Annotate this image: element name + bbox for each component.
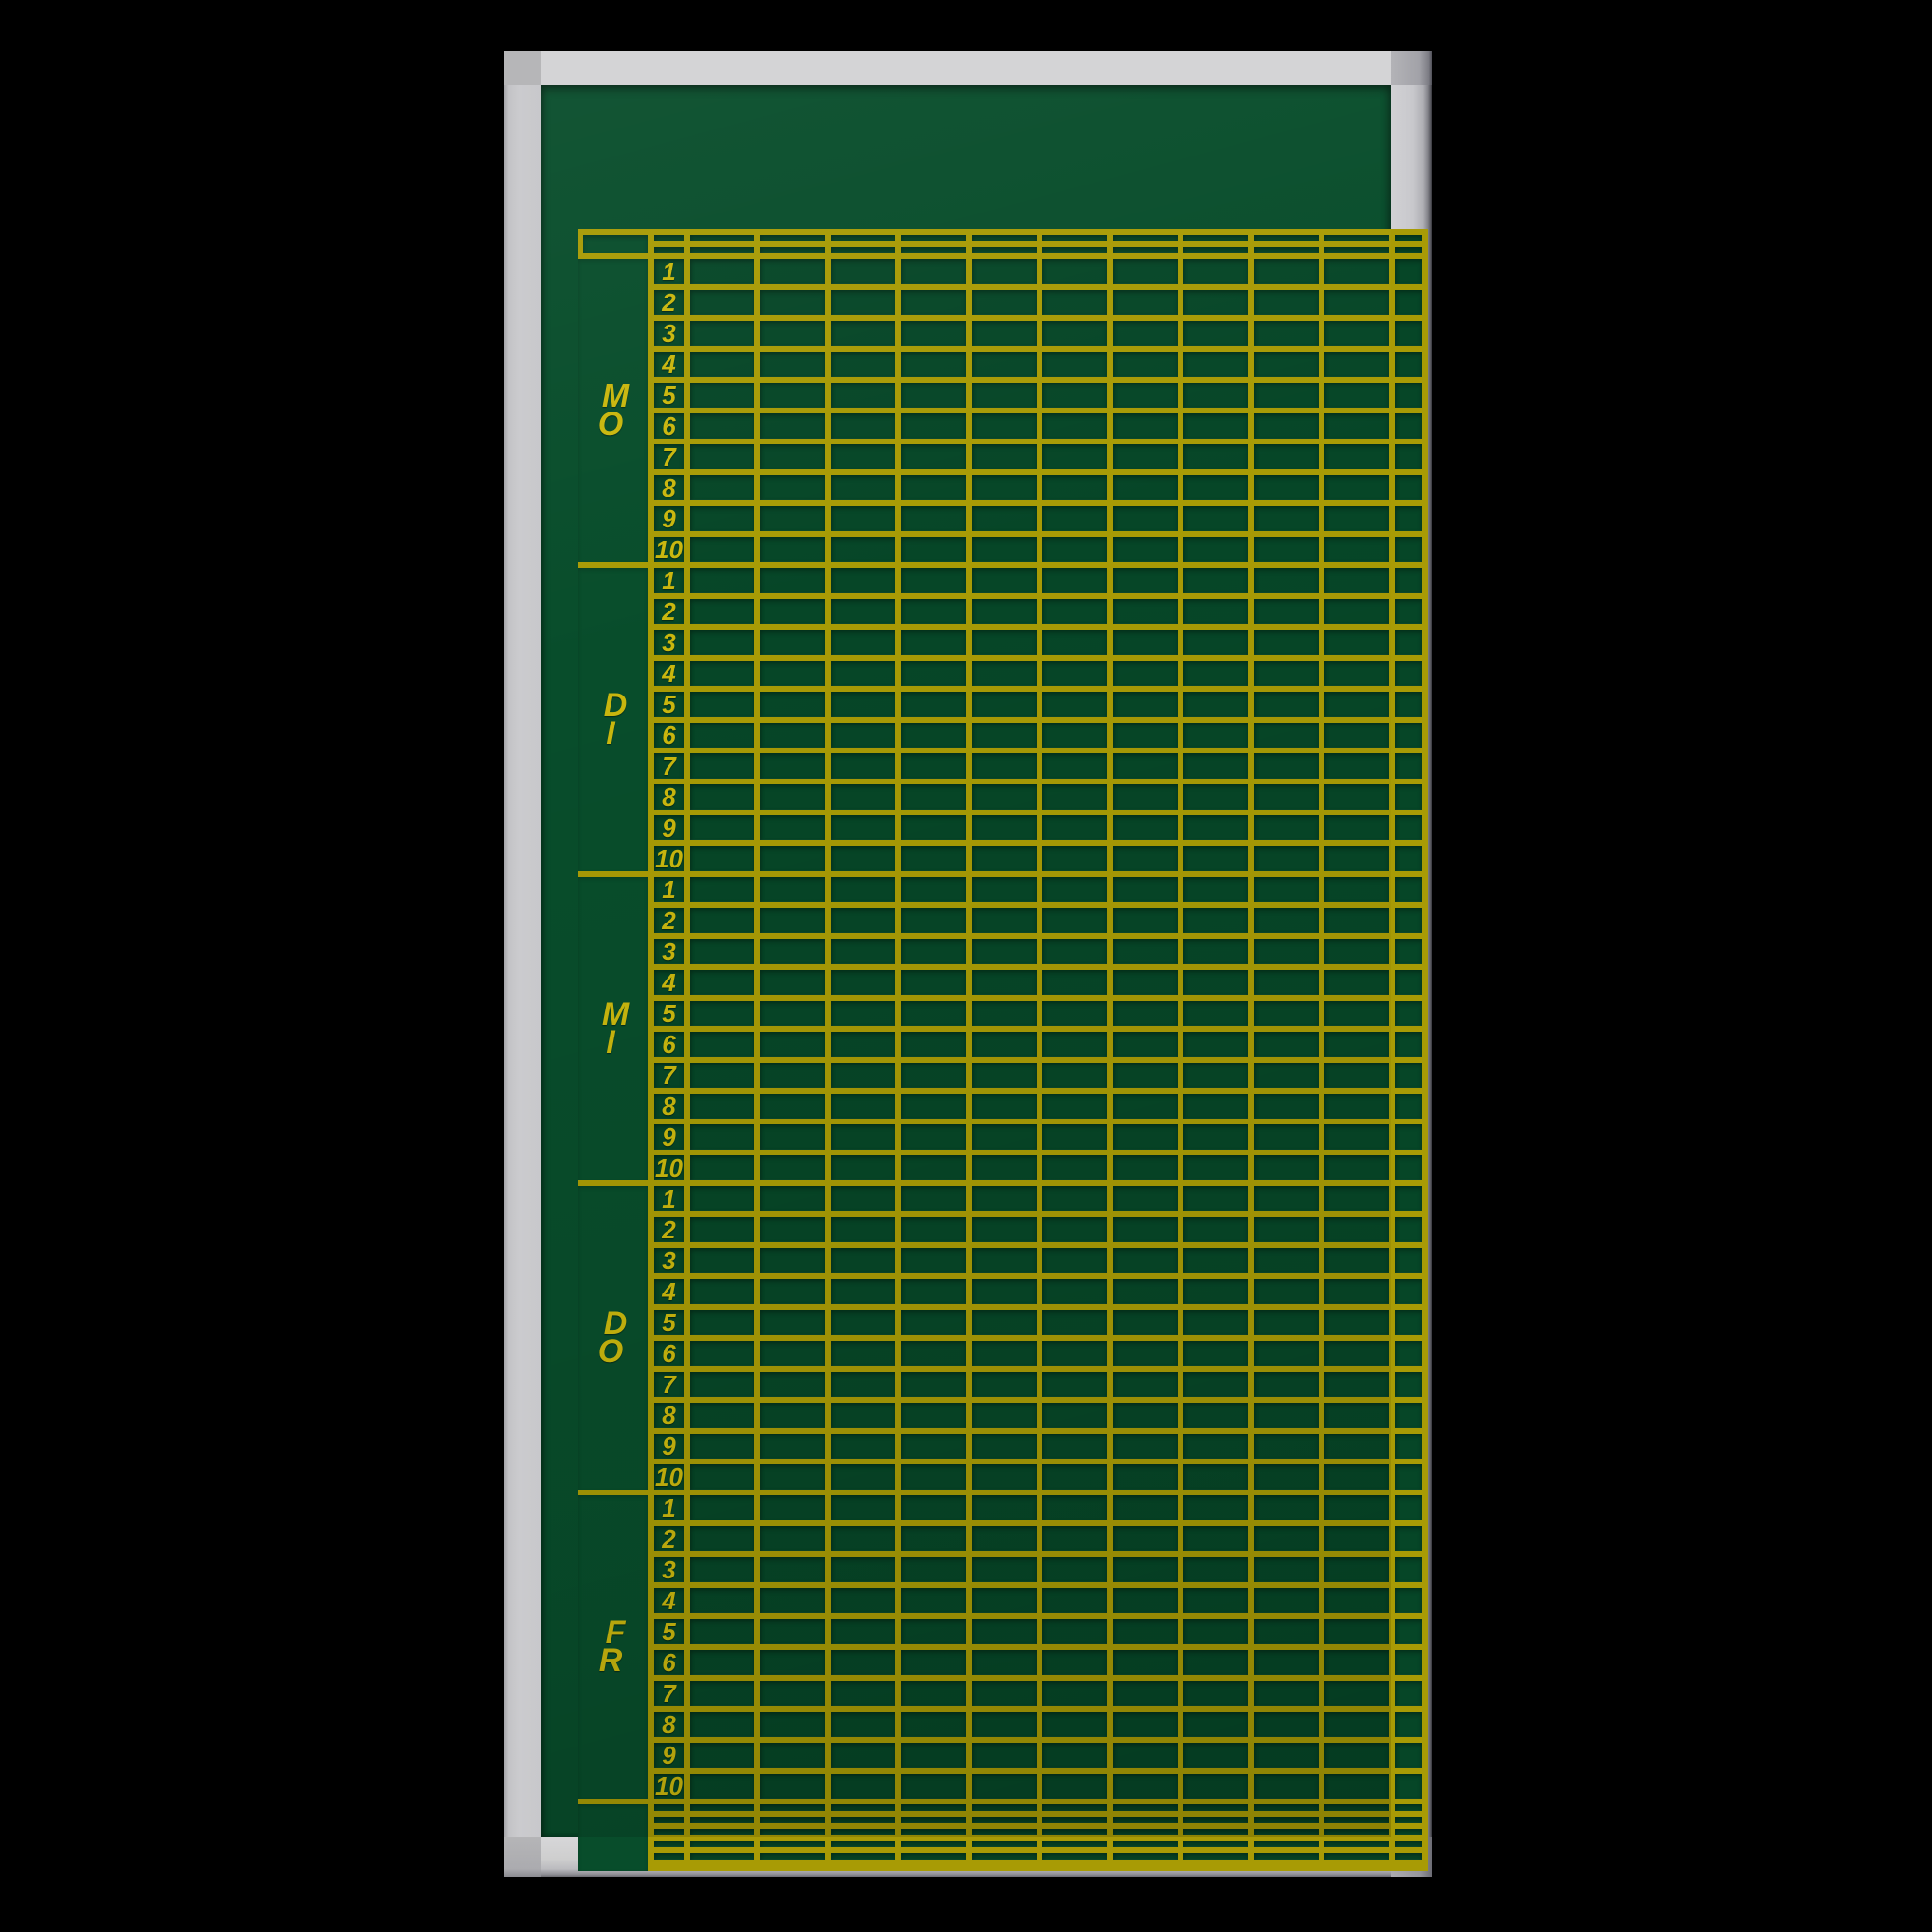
slot-cell xyxy=(831,753,895,779)
period-number-cell: 2 xyxy=(654,908,684,933)
slot-cell xyxy=(690,1841,754,1848)
slot-cell xyxy=(1324,784,1389,810)
slot-cell xyxy=(1395,753,1422,779)
slot-cell xyxy=(1113,1588,1178,1613)
slot-cell xyxy=(690,1588,754,1613)
slot-cell xyxy=(831,1372,895,1397)
slot-cell xyxy=(1324,259,1389,284)
slot-cell xyxy=(1395,1341,1422,1366)
slot-cell xyxy=(1183,784,1248,810)
slot-cell xyxy=(1113,723,1178,748)
slot-cell xyxy=(1113,939,1178,964)
frame-corner-cap-top-right xyxy=(1391,51,1432,85)
slot-cell xyxy=(901,1495,966,1520)
slot-cell xyxy=(1324,939,1389,964)
slot-cell xyxy=(760,1526,825,1551)
slot-cell xyxy=(690,1186,754,1211)
slot-cell xyxy=(831,1279,895,1304)
slot-cell xyxy=(760,1853,825,1860)
slot-cell xyxy=(760,290,825,315)
slot-cell xyxy=(690,1557,754,1582)
slot-cell xyxy=(690,815,754,840)
slot-cell xyxy=(901,1124,966,1150)
slot-cell xyxy=(1183,568,1248,593)
slot-cell xyxy=(1395,413,1422,439)
footer-label-section xyxy=(578,1804,648,1871)
slot-cell xyxy=(1042,1681,1107,1706)
slot-cell xyxy=(690,846,754,871)
slot-cell xyxy=(1395,1279,1422,1304)
slot-cell xyxy=(1395,444,1422,469)
slot-cell xyxy=(972,753,1037,779)
slot-cell xyxy=(1254,1774,1319,1799)
slot-cell xyxy=(1324,815,1389,840)
slot-cell xyxy=(1254,599,1319,624)
period-number-cell: 6 xyxy=(654,413,684,439)
period-number-cell: 1 xyxy=(654,1495,684,1520)
period-number-cell: 2 xyxy=(654,599,684,624)
slot-cell xyxy=(901,1774,966,1799)
slot-cell xyxy=(1113,970,1178,995)
slot-cell xyxy=(1395,1155,1422,1180)
slot-cell xyxy=(1395,1804,1422,1811)
slot-cell xyxy=(1042,1829,1107,1835)
slot-cell xyxy=(1042,599,1107,624)
slot-cell xyxy=(1042,970,1107,995)
period-number-cell: 7 xyxy=(654,1681,684,1706)
slot-cell xyxy=(1183,506,1248,531)
slot-cell xyxy=(1395,475,1422,500)
slot-cell xyxy=(1395,1063,1422,1088)
period-number-cell: 7 xyxy=(654,1063,684,1088)
slot-cell xyxy=(1395,247,1422,254)
slot-cell xyxy=(1042,506,1107,531)
slot-cell xyxy=(1183,247,1248,254)
slot-cell xyxy=(1324,1310,1389,1335)
slot-cell xyxy=(1113,321,1178,346)
slot-cell xyxy=(1254,877,1319,902)
slot-cell xyxy=(1395,846,1422,871)
slot-cell xyxy=(972,877,1037,902)
frame-corner-cap-bottom-left xyxy=(504,1837,541,1877)
slot-cell xyxy=(1042,1526,1107,1551)
period-number-cell: 6 xyxy=(654,1650,684,1675)
slot-cell xyxy=(690,753,754,779)
slot-cell xyxy=(831,321,895,346)
slot-cell xyxy=(1254,1310,1319,1335)
slot-cell xyxy=(831,537,895,562)
slot-cell xyxy=(1324,413,1389,439)
slot-cell xyxy=(901,815,966,840)
slot-cell xyxy=(690,599,754,624)
slot-cell xyxy=(1113,1804,1178,1811)
frame-left-rail xyxy=(504,51,541,1877)
slot-cell xyxy=(760,970,825,995)
slot-cell xyxy=(1254,1434,1319,1459)
slot-cell xyxy=(760,753,825,779)
slot-cell xyxy=(760,352,825,377)
slot-cell xyxy=(1183,1001,1248,1026)
slot-cell xyxy=(901,1619,966,1644)
slot-cell xyxy=(690,475,754,500)
slot-cell xyxy=(1042,1804,1107,1811)
slot-cell xyxy=(760,1829,825,1835)
slot-cell xyxy=(1183,1186,1248,1211)
slot-cell xyxy=(1183,753,1248,779)
slot-cell xyxy=(1254,321,1319,346)
slot-cell xyxy=(972,259,1037,284)
slot-cell xyxy=(1395,1557,1422,1582)
slot-cell xyxy=(901,1001,966,1026)
slot-cell xyxy=(972,1681,1037,1706)
slot-cell xyxy=(901,692,966,717)
slot-cell xyxy=(1113,753,1178,779)
period-number-cell-empty xyxy=(654,1853,684,1860)
slot-cell xyxy=(1324,1464,1389,1490)
slot-cell xyxy=(831,444,895,469)
period-number-cell: 3 xyxy=(654,630,684,655)
period-number-cell: 6 xyxy=(654,723,684,748)
slot-cell xyxy=(760,568,825,593)
period-number-cell: 1 xyxy=(654,259,684,284)
slot-cell xyxy=(972,1829,1037,1835)
slot-cell xyxy=(831,1063,895,1088)
period-number-cell: 5 xyxy=(654,1001,684,1026)
slot-cell xyxy=(901,235,966,241)
slot-cell xyxy=(1042,1853,1107,1860)
slot-cell xyxy=(1254,1865,1319,1872)
slot-cell xyxy=(760,1248,825,1273)
slot-cell xyxy=(901,908,966,933)
slot-cell xyxy=(1183,1853,1248,1860)
slot-cell xyxy=(690,1526,754,1551)
slot-cell xyxy=(1254,1526,1319,1551)
slot-cell xyxy=(972,383,1037,408)
slot-cell xyxy=(1113,1155,1178,1180)
schedule-board: MODIMIDOFR123456789101234567891012345678… xyxy=(504,51,1432,1877)
slot-cell xyxy=(690,1403,754,1428)
slot-cell xyxy=(901,1434,966,1459)
slot-cell xyxy=(1395,723,1422,748)
slot-cell xyxy=(1324,1817,1389,1824)
slot-cell xyxy=(901,1341,966,1366)
slot-cell xyxy=(1324,1853,1389,1860)
slot-cell xyxy=(1183,1817,1248,1824)
slot-cell xyxy=(1254,1743,1319,1768)
slot-cell xyxy=(972,444,1037,469)
slot-cell xyxy=(831,568,895,593)
slot-cell xyxy=(1254,247,1319,254)
slot-cell xyxy=(901,661,966,686)
slot-cell xyxy=(690,1155,754,1180)
slot-cell xyxy=(972,321,1037,346)
slot-cell xyxy=(690,1063,754,1088)
slot-cell xyxy=(690,1372,754,1397)
slot-cell xyxy=(1254,259,1319,284)
slot-cell xyxy=(1254,1681,1319,1706)
slot-cell xyxy=(972,1248,1037,1273)
slot-cell xyxy=(1042,1841,1107,1848)
slot-cell xyxy=(690,939,754,964)
slot-cell xyxy=(1042,1619,1107,1644)
slot-cell xyxy=(1183,1279,1248,1304)
slot-cell xyxy=(1183,661,1248,686)
period-number-cell: 2 xyxy=(654,1217,684,1242)
slot-cell xyxy=(760,1063,825,1088)
slot-cell xyxy=(1113,352,1178,377)
slot-cell xyxy=(690,877,754,902)
slot-cell xyxy=(690,1650,754,1675)
slot-cell xyxy=(690,630,754,655)
period-number-cell: 9 xyxy=(654,815,684,840)
slot-cell xyxy=(972,568,1037,593)
slot-cell xyxy=(1183,599,1248,624)
slot-cell xyxy=(1324,753,1389,779)
period-number-cell-empty xyxy=(654,1804,684,1811)
period-number-cell: 7 xyxy=(654,753,684,779)
slot-cell xyxy=(1183,1841,1248,1848)
slot-cell xyxy=(760,877,825,902)
slot-cell xyxy=(1324,661,1389,686)
slot-cell xyxy=(1183,290,1248,315)
slot-cell xyxy=(1183,939,1248,964)
slot-cell xyxy=(1324,568,1389,593)
slot-cell xyxy=(1113,1217,1178,1242)
slot-cell xyxy=(972,939,1037,964)
slot-cell xyxy=(760,661,825,686)
slot-cell xyxy=(1324,1341,1389,1366)
slot-cell xyxy=(1395,1032,1422,1057)
slot-cell xyxy=(1254,1841,1319,1848)
slot-cell xyxy=(831,1712,895,1737)
slot-cell xyxy=(1395,1712,1422,1737)
slot-cell xyxy=(1042,1001,1107,1026)
slot-cell xyxy=(690,723,754,748)
slot-cell xyxy=(901,1310,966,1335)
slot-cell xyxy=(1042,877,1107,902)
slot-cell xyxy=(901,290,966,315)
slot-cell xyxy=(1042,1817,1107,1824)
slot-cell xyxy=(760,599,825,624)
slot-cell xyxy=(831,599,895,624)
slot-cell xyxy=(1395,1619,1422,1644)
slot-cell xyxy=(1254,1155,1319,1180)
slot-cell xyxy=(1042,1310,1107,1335)
slot-cell xyxy=(690,1094,754,1119)
slot-cell xyxy=(1324,1619,1389,1644)
slot-cell xyxy=(1113,475,1178,500)
slot-cell xyxy=(831,1094,895,1119)
slot-cell xyxy=(1395,692,1422,717)
period-number-cell: 2 xyxy=(654,290,684,315)
slot-cell xyxy=(901,753,966,779)
slot-cell xyxy=(831,784,895,810)
period-number-cell: 5 xyxy=(654,692,684,717)
slot-cell xyxy=(1254,692,1319,717)
period-number-cell: 7 xyxy=(654,444,684,469)
slot-cell xyxy=(1324,290,1389,315)
period-number-cell: 9 xyxy=(654,1124,684,1150)
slot-cell xyxy=(1113,1557,1178,1582)
slot-cell xyxy=(972,290,1037,315)
slot-cell xyxy=(1395,1829,1422,1835)
slot-cell xyxy=(690,1310,754,1335)
slot-cell xyxy=(1395,537,1422,562)
period-number-cell: 10 xyxy=(654,537,684,562)
slot-cell xyxy=(1042,444,1107,469)
slot-cell xyxy=(1042,1248,1107,1273)
slot-cell xyxy=(972,1853,1037,1860)
slot-cell xyxy=(690,444,754,469)
period-number-cell: 2 xyxy=(654,1526,684,1551)
slot-cell xyxy=(831,1032,895,1057)
slot-cell xyxy=(1183,1217,1248,1242)
slot-cell xyxy=(1395,506,1422,531)
slot-cell xyxy=(901,630,966,655)
period-number-cell: 5 xyxy=(654,1619,684,1644)
slot-cell xyxy=(1042,568,1107,593)
slot-cell xyxy=(1324,908,1389,933)
slot-cell xyxy=(831,908,895,933)
slot-cell xyxy=(1042,1094,1107,1119)
slot-cell xyxy=(1113,247,1178,254)
slot-cell xyxy=(901,1032,966,1057)
slot-cell xyxy=(1183,1248,1248,1273)
slot-cell xyxy=(1042,1372,1107,1397)
slot-cell xyxy=(1324,1557,1389,1582)
slot-cell xyxy=(1395,1372,1422,1397)
slot-cell xyxy=(972,1464,1037,1490)
slot-cell xyxy=(901,970,966,995)
slot-cell xyxy=(831,413,895,439)
period-number-cell: 8 xyxy=(654,475,684,500)
slot-cell xyxy=(831,475,895,500)
slot-cell xyxy=(972,970,1037,995)
slot-cell xyxy=(1113,692,1178,717)
slot-cell xyxy=(1254,506,1319,531)
slot-cell xyxy=(901,599,966,624)
slot-cell xyxy=(1113,815,1178,840)
slot-cell xyxy=(1113,630,1178,655)
slot-cell xyxy=(690,290,754,315)
slot-cell xyxy=(1254,1853,1319,1860)
slot-cell xyxy=(1183,815,1248,840)
slot-cell xyxy=(1113,1310,1178,1335)
slot-cell xyxy=(1254,352,1319,377)
slot-cell xyxy=(1042,290,1107,315)
slot-cell xyxy=(760,1774,825,1799)
slot-cell xyxy=(831,1403,895,1428)
slot-cell xyxy=(1113,1774,1178,1799)
slot-cell xyxy=(1042,1279,1107,1304)
period-number-cell: 6 xyxy=(654,1032,684,1057)
slot-cell xyxy=(760,1434,825,1459)
slot-cell xyxy=(831,1248,895,1273)
period-number-cell: 1 xyxy=(654,877,684,902)
slot-cell xyxy=(1042,1865,1107,1872)
period-number-cell: 4 xyxy=(654,970,684,995)
period-number-cell-empty xyxy=(654,1841,684,1848)
slot-cell xyxy=(901,1817,966,1824)
slot-cell xyxy=(831,1526,895,1551)
slot-cell xyxy=(831,661,895,686)
slot-cell xyxy=(690,352,754,377)
slot-cell xyxy=(901,1588,966,1613)
slot-cell xyxy=(972,815,1037,840)
slot-cell xyxy=(760,1217,825,1242)
slot-cell xyxy=(1254,1248,1319,1273)
slot-cell xyxy=(1254,1217,1319,1242)
slot-cell xyxy=(760,235,825,241)
slot-cell xyxy=(972,1434,1037,1459)
slot-cell xyxy=(1395,1526,1422,1551)
slot-cell xyxy=(1113,1743,1178,1768)
slot-cell xyxy=(1042,1124,1107,1150)
slot-cell xyxy=(1254,723,1319,748)
slot-cell xyxy=(1113,1341,1178,1366)
slot-cell xyxy=(690,1217,754,1242)
slot-cell xyxy=(1324,1804,1389,1811)
slot-cell xyxy=(1113,1712,1178,1737)
slot-cell xyxy=(901,1186,966,1211)
slot-cell xyxy=(690,259,754,284)
slot-cell xyxy=(690,413,754,439)
slot-cell xyxy=(1254,1619,1319,1644)
slot-cell xyxy=(1183,1829,1248,1835)
slot-cell xyxy=(690,1248,754,1273)
slot-cell xyxy=(901,1743,966,1768)
slot-cell xyxy=(1113,537,1178,562)
slot-cell xyxy=(1113,1063,1178,1088)
slot-cell xyxy=(690,1001,754,1026)
slot-cell xyxy=(1395,1094,1422,1119)
slot-cell xyxy=(1042,413,1107,439)
slot-cell xyxy=(1113,1434,1178,1459)
slot-cell xyxy=(1254,1650,1319,1675)
period-number-cell: 10 xyxy=(654,846,684,871)
slot-cell xyxy=(760,475,825,500)
period-number-cell: 4 xyxy=(654,1279,684,1304)
slot-cell xyxy=(972,235,1037,241)
slot-cell xyxy=(1042,939,1107,964)
slot-cell xyxy=(972,1865,1037,1872)
slot-cell xyxy=(1324,1588,1389,1613)
slot-cell xyxy=(1113,1526,1178,1551)
slot-cell xyxy=(1042,1712,1107,1737)
slot-cell xyxy=(1042,1650,1107,1675)
slot-cell xyxy=(760,1817,825,1824)
slot-cell xyxy=(1183,1526,1248,1551)
slot-cell xyxy=(1042,1341,1107,1366)
slot-cell xyxy=(972,1279,1037,1304)
slot-cell xyxy=(690,1817,754,1824)
slot-cell xyxy=(760,1841,825,1848)
slot-cell xyxy=(1395,352,1422,377)
slot-cell xyxy=(1042,815,1107,840)
slot-cell xyxy=(1254,1372,1319,1397)
slot-cell xyxy=(1113,1853,1178,1860)
slot-cell xyxy=(1113,1001,1178,1026)
slot-cell xyxy=(1395,1650,1422,1675)
period-number-cell-empty xyxy=(654,235,684,241)
slot-cell xyxy=(690,1804,754,1811)
slot-cell xyxy=(1254,1063,1319,1088)
slot-cell xyxy=(1324,1094,1389,1119)
slot-cell xyxy=(831,1495,895,1520)
slot-cell xyxy=(690,1434,754,1459)
slot-cell xyxy=(972,1341,1037,1366)
slot-cell xyxy=(831,383,895,408)
